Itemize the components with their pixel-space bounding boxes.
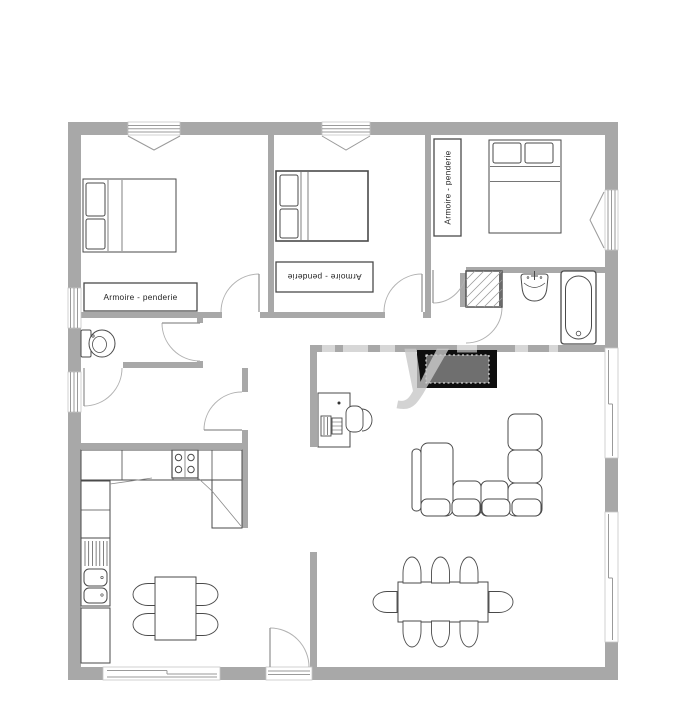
bathtub [561, 271, 596, 344]
wall-bedrooms-1-2 [268, 135, 274, 312]
wall-wc-right [197, 318, 203, 323]
window-swing [590, 192, 604, 248]
door-arc-hall-top [84, 368, 122, 406]
wardrobe-label: Armoire - penderie [287, 272, 361, 282]
wall-bedroom2-bottom [423, 312, 431, 318]
kitchen-counter-right [212, 480, 242, 528]
bed-double-bedroom1 [83, 179, 176, 252]
wall-hall-right [242, 368, 248, 392]
window-swing [128, 136, 180, 150]
floor-plan-svg: Armoire - penderie Armoire - penderie Ar… [0, 0, 686, 715]
wardrobe-bedroom1: Armoire - penderie [84, 283, 197, 311]
door-arc-entry [270, 628, 309, 667]
chair [133, 614, 155, 636]
door-arc-hall-right [204, 392, 242, 430]
wall-bottom [312, 667, 618, 680]
chair [196, 584, 218, 606]
bed-double-bedroom3 [489, 140, 561, 233]
stove [172, 450, 198, 478]
wall-living-stub-bottom [310, 552, 317, 667]
wall-hall-bottom [81, 443, 248, 449]
wall-left [68, 122, 81, 288]
window-right-living-lower [605, 512, 618, 642]
desk [318, 393, 350, 447]
wardrobe-bedroom2: Armoire - penderie [276, 262, 373, 292]
kitchen-sink [81, 538, 110, 606]
toilet [81, 330, 115, 357]
wall-top [180, 122, 322, 135]
bed-double-bedroom2 [276, 171, 368, 241]
wall-bedroom2-bottom [260, 312, 385, 318]
entry-door-threshold [266, 667, 312, 680]
door-arc-bedroom2 [384, 274, 422, 312]
wall-bedroom1-bottom [81, 312, 222, 318]
wall-top [370, 122, 618, 135]
door-arc-wc [162, 323, 200, 361]
wardrobe-label: Armoire - penderie [443, 150, 453, 224]
chair [196, 614, 218, 636]
wall-right [605, 642, 618, 680]
watermark: y [322, 319, 558, 410]
wall-wc-bottom [123, 362, 203, 368]
door-arc-bedroom1 [221, 274, 259, 312]
chair [489, 592, 513, 613]
washbasin [521, 271, 548, 301]
shower [466, 271, 502, 307]
watermark-letter: y [396, 319, 450, 410]
wall-bedrooms-2-3 [425, 135, 431, 312]
dining-table [398, 582, 488, 622]
wall-right [605, 250, 618, 348]
chair [403, 621, 421, 647]
chair [432, 621, 450, 647]
kitchen-counter-top [81, 450, 242, 480]
chair [460, 557, 478, 583]
kitchen-table [155, 577, 196, 640]
wall-right [605, 458, 618, 512]
chair [403, 557, 421, 583]
chair [432, 557, 450, 583]
chair [133, 584, 155, 606]
floor-plan: Armoire - penderie Armoire - penderie Ar… [0, 0, 686, 715]
office-chair [346, 406, 372, 432]
wardrobe-label: Armoire - penderie [103, 292, 177, 302]
wall-living-stub-top [310, 345, 317, 447]
wall-bottom [220, 667, 266, 680]
window-right-living-upper [605, 348, 618, 458]
door-arc-bathroom [466, 307, 502, 343]
wall-right [605, 122, 618, 190]
window-swing [322, 136, 370, 150]
wall-left [68, 412, 81, 680]
wall-left [68, 328, 81, 372]
chair [460, 621, 478, 647]
sofa-sectional [412, 414, 542, 516]
chair [373, 592, 397, 613]
wardrobe-bedroom3: Armoire - penderie [434, 139, 461, 236]
wall-kitchen-right [242, 430, 248, 528]
